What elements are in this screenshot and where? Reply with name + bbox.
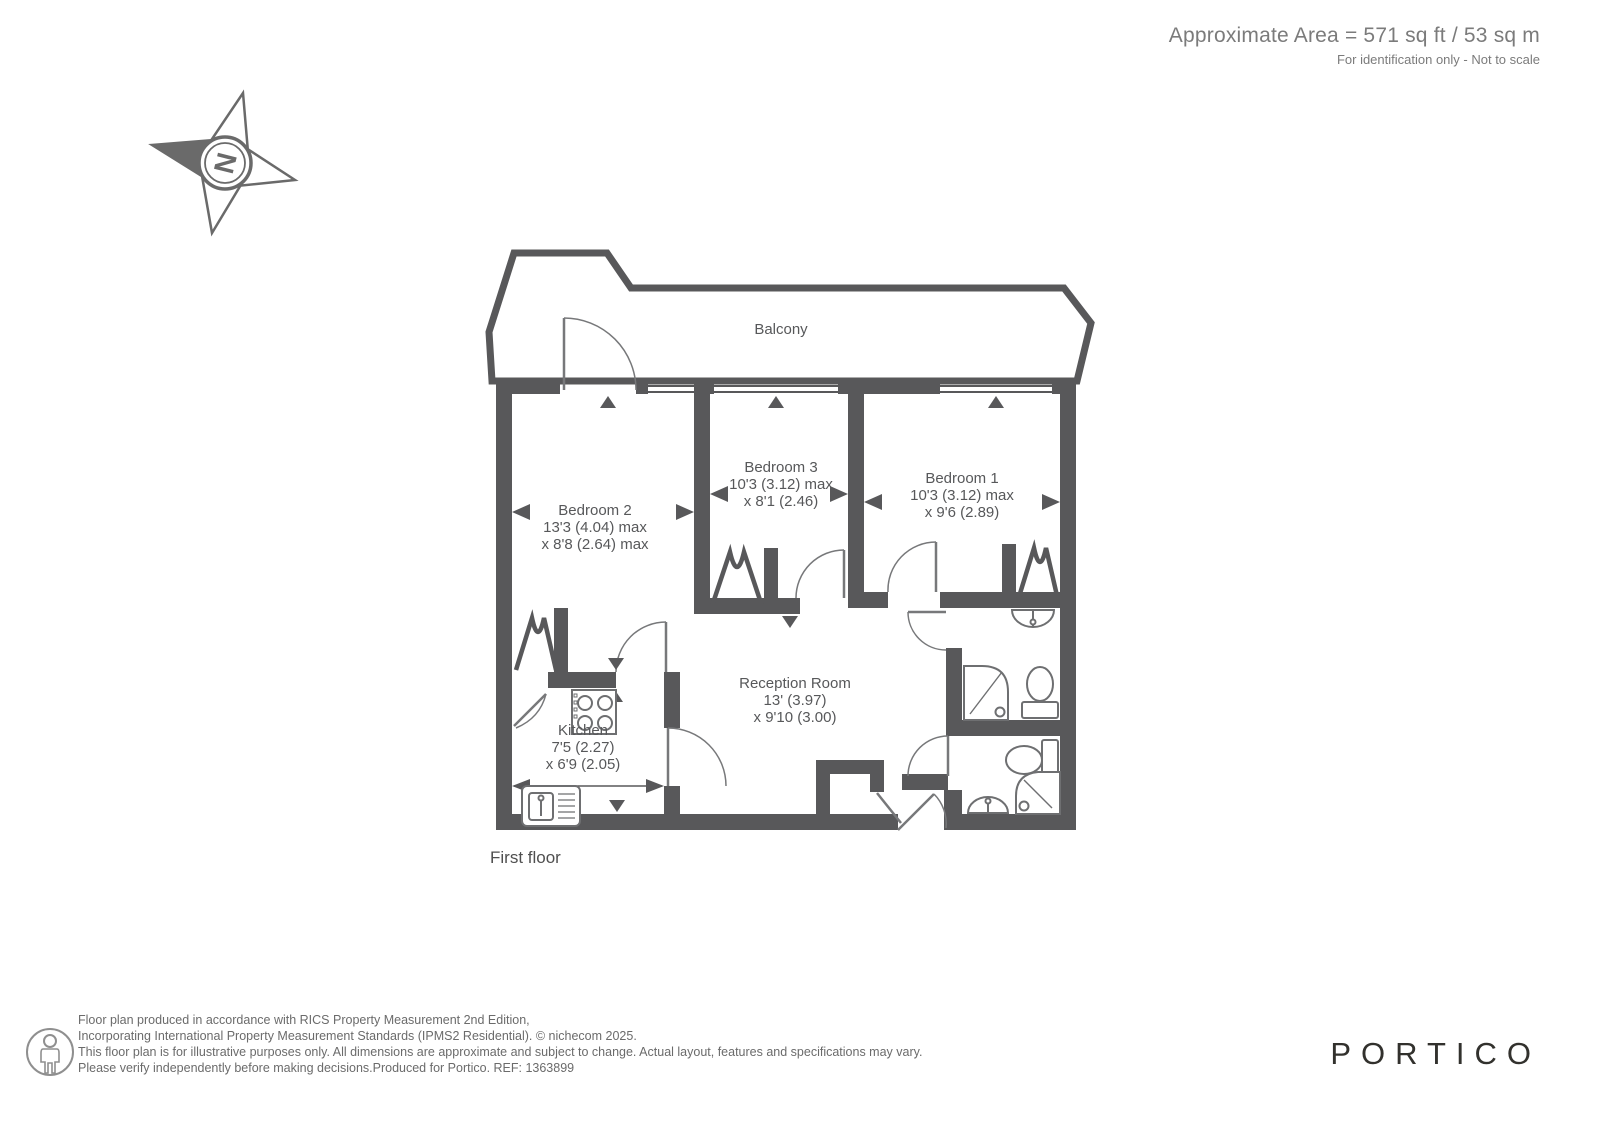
room-label-bedroom1: Bedroom 1 10'3 (3.12) max x 9'6 (2.89) [910,470,1014,521]
bedroom1-door [888,542,936,592]
disclaimer-text: Floor plan produced in accordance with R… [78,1012,922,1076]
wardrobe-bedroom3-icon [712,552,762,606]
wardrobe-bedroom2-icon [516,618,556,670]
disclaimer-line-2: Incorporating International Property Mea… [78,1028,922,1044]
floorplan-drawing: N [0,0,1599,1131]
room-label-bedroom2: Bedroom 2 13'3 (4.04) max x 8'8 (2.64) m… [541,502,648,553]
kitchen-door [514,694,546,728]
disclaimer-line-1: Floor plan produced in accordance with R… [78,1012,922,1028]
marker-balcony-door [600,396,616,408]
room-label-kitchen: Kitchen 7'5 (2.27) x 6'9 (2.05) [546,722,621,773]
shower-icon-lower [1016,772,1060,814]
floor-label: First floor [490,848,561,868]
basin-icon-upper [1012,610,1054,627]
bathroom1-door [908,612,946,650]
marker-kitchen-bottom [609,800,625,812]
marker-window-bed3 [768,396,784,408]
basin-icon-lower [968,797,1008,813]
floorplan-page: Approximate Area = 571 sq ft / 53 sq m F… [0,0,1599,1131]
bathroom2-door [908,736,948,776]
marker-bed2-wall [608,658,624,670]
portico-logo: PORTICO [1330,1036,1541,1072]
sink-icon [522,786,580,826]
bathroom1-fixtures [964,610,1058,720]
bedroom2-door [616,622,666,672]
entry-door [898,794,946,830]
balcony-outline [489,253,1091,381]
room-label-balcony: Balcony [754,321,807,338]
toilet-icon-upper [1022,667,1058,718]
shower-icon-upper [964,666,1008,720]
room-label-reception: Reception Room 13' (3.97) x 9'10 (3.00) [739,675,851,726]
compass-icon: N [152,93,295,233]
bathroom2-fixtures [968,740,1060,814]
disclaimer-line-3: This floor plan is for illustrative purp… [78,1044,922,1060]
disclaimer-line-4: Please verify independently before makin… [78,1060,922,1076]
kitchen-reception-door [668,728,726,786]
marker-bed3-wall [782,616,798,628]
marker-window-bed1 [988,396,1004,408]
room-label-bedroom3: Bedroom 3 10'3 (3.12) max x 8'1 (2.46) [729,459,833,510]
bedroom3-door [796,550,844,598]
